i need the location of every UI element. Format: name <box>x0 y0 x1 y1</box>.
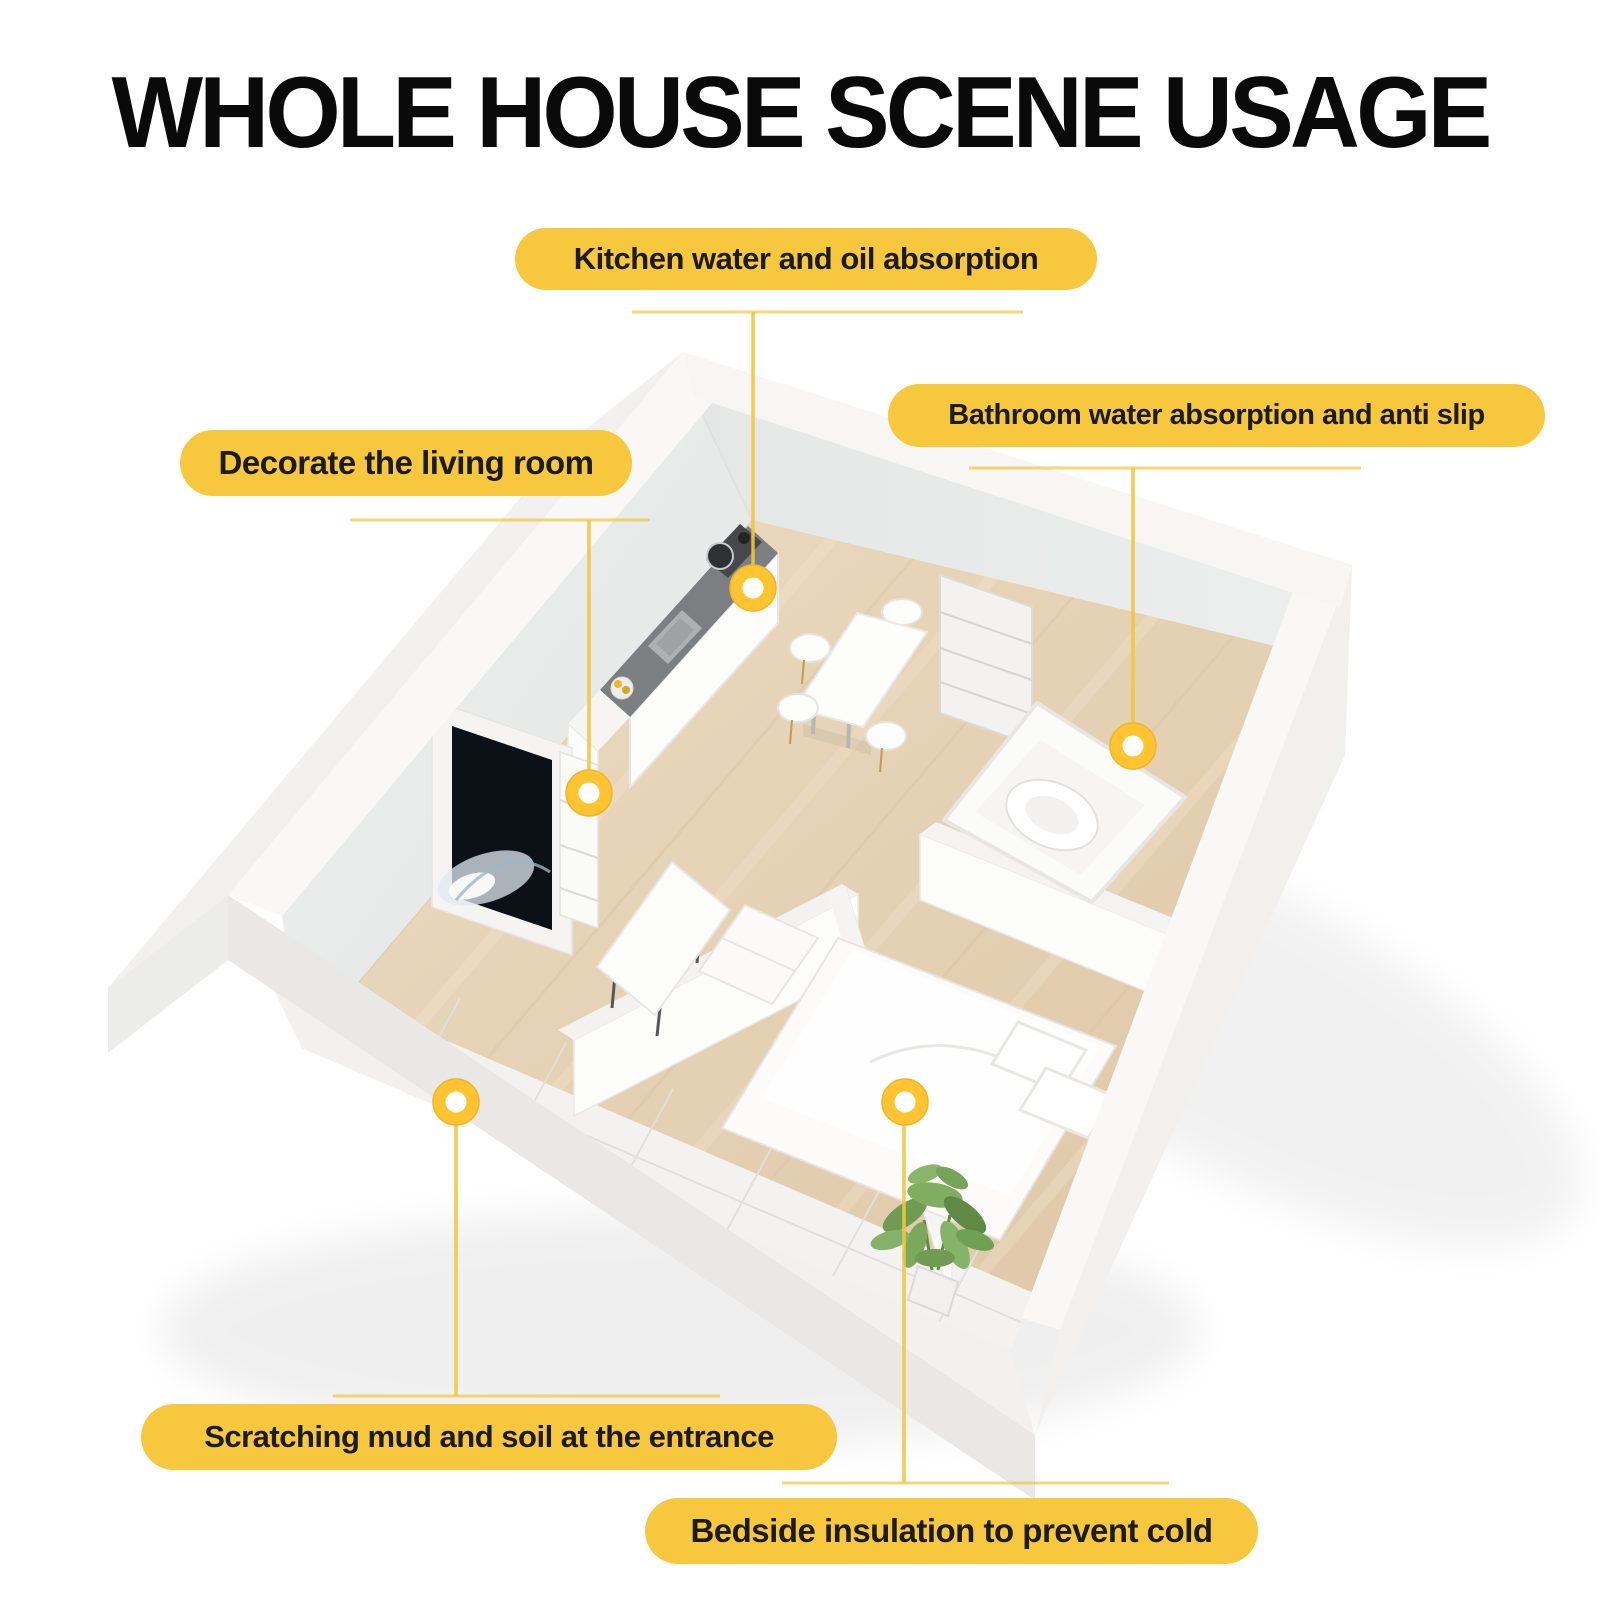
marker-dot-bedside <box>882 1079 928 1125</box>
callout-pill-entrance: Scratching mud and soil at the entrance <box>141 1404 837 1470</box>
dining-chair <box>790 634 830 662</box>
marker-dot-living <box>566 770 612 816</box>
marker-dot-kitchen <box>730 565 776 611</box>
fruit-lemon-2 <box>622 686 630 694</box>
infographic-canvas: WHOLE HOUSE SCENE USAGE Kitchen water an… <box>0 0 1600 1600</box>
kitchen-pot <box>707 543 733 569</box>
fruit-bowl <box>611 677 633 699</box>
fruit-lemon <box>614 680 622 688</box>
callout-pill-bathroom: Bathroom water absorption and anti slip <box>888 384 1545 447</box>
marker-dot-entrance <box>433 1079 479 1125</box>
kitchen-burner <box>738 532 750 544</box>
callout-pill-bedside: Bedside insulation to prevent cold <box>645 1498 1258 1564</box>
marker-dot-bathroom <box>1110 723 1156 769</box>
plant-leaf <box>915 1249 955 1267</box>
callout-pill-living-room: Decorate the living room <box>180 430 632 496</box>
page-title: WHOLE HOUSE SCENE USAGE <box>32 56 1568 171</box>
dining-chair <box>778 694 818 722</box>
dining-chair <box>866 722 906 750</box>
callout-pill-kitchen: Kitchen water and oil absorption <box>515 228 1097 290</box>
